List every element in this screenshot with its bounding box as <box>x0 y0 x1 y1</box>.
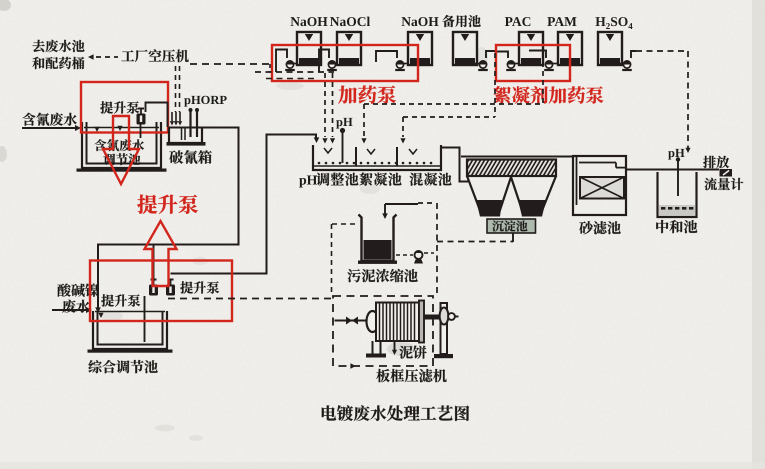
svg-text:pHORP: pHORP <box>184 93 227 107</box>
svg-text:NaOH: NaOH <box>401 14 439 29</box>
svg-text:pH: pH <box>668 146 685 160</box>
svg-text:NaOCl: NaOCl <box>330 14 371 29</box>
svg-text:pH: pH <box>299 173 318 188</box>
svg-text:pH: pH <box>336 115 353 129</box>
svg-text:PAC: PAC <box>505 14 532 29</box>
svg-text:NaOH: NaOH <box>290 14 328 29</box>
svg-text:PAM: PAM <box>547 14 577 29</box>
svg-text:H2SO4: H2SO4 <box>595 14 633 31</box>
